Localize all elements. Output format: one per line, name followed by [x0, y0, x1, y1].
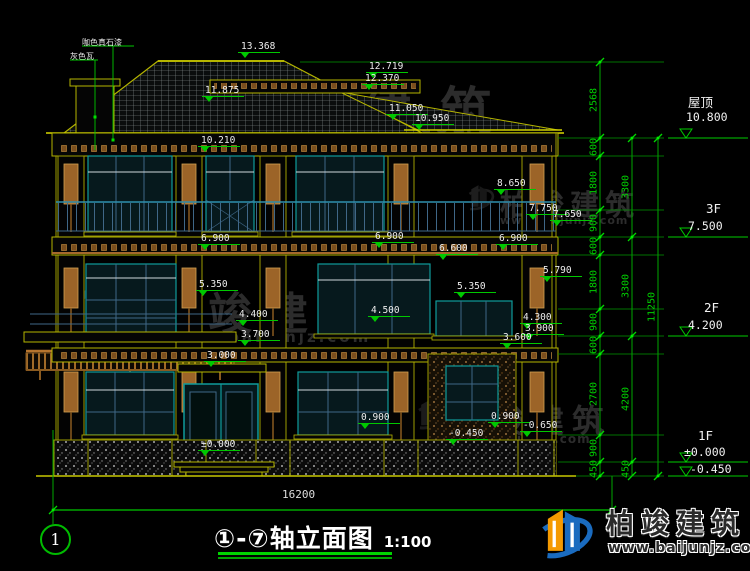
level-name: 1F	[698, 428, 713, 443]
elevation-mark: 3.700	[238, 330, 280, 341]
elevation-value: 11.875	[202, 86, 244, 96]
elevation-value: 4.500	[368, 306, 410, 316]
elevation-value: -0.650	[520, 421, 562, 431]
level-value: 4.200	[688, 318, 723, 332]
dim-label: 1800	[589, 270, 600, 294]
brand-block: 柏竣建筑 www.baijunjz.com	[520, 500, 750, 568]
dim-label: 1800	[589, 171, 600, 195]
roof	[64, 61, 562, 133]
elevation-value: 4.400	[236, 310, 278, 320]
elevation-value: 4.300	[520, 313, 562, 323]
level-name: 3F	[706, 201, 721, 216]
brand-logo-icon	[520, 500, 604, 566]
elevation-mark: 5.350	[454, 282, 496, 293]
elevation-value: 3.600	[500, 333, 542, 343]
brand-name: 柏竣建筑	[606, 502, 746, 542]
level-value: 7.500	[688, 219, 723, 233]
elevation-value: 6.600	[436, 244, 478, 254]
elevation-mark: 10.210	[198, 136, 240, 147]
elevation-mark: -0.650	[520, 421, 562, 432]
eave-cornice	[46, 133, 564, 156]
elevation-value: 3.700	[238, 330, 280, 340]
overall-dim-label: 16200	[282, 488, 315, 501]
elevation-mark: 3.600	[500, 333, 542, 344]
dim-label: 450	[589, 460, 600, 478]
elevation-value: -0.450	[446, 429, 488, 439]
terrace-railing	[56, 202, 556, 231]
material-label: 咖色真石漆	[82, 37, 122, 48]
elevation-mark: 11.875	[202, 86, 244, 97]
elevation-value: 12.370	[362, 74, 404, 84]
dim-label: 900	[589, 439, 600, 457]
second-floor-windows	[82, 264, 516, 340]
elevation-drawing-geometry	[0, 0, 750, 571]
elevation-value: 5.790	[540, 266, 582, 276]
elevation-mark: 5.790	[540, 266, 582, 277]
dim-label: 4200	[621, 387, 632, 411]
elevation-mark: 6.600	[436, 244, 478, 255]
elevation-mark: 6.900	[496, 234, 538, 245]
title-scale: 1:100	[384, 533, 432, 551]
elevation-value: 12.719	[366, 62, 408, 72]
elevation-mark: 10.950	[412, 114, 454, 125]
elevation-mark: 12.719	[366, 62, 408, 73]
base-and-ground	[36, 440, 576, 476]
title-underline	[218, 552, 392, 555]
dim-label: 3300	[621, 274, 632, 298]
title-underline	[218, 557, 392, 559]
level-name: 屋顶	[688, 92, 713, 111]
elevation-value: 0.900	[358, 413, 400, 423]
elevation-value: 6.900	[372, 232, 414, 242]
elevation-mark: 6.900	[372, 232, 414, 243]
elevation-mark: 7.650	[550, 210, 592, 221]
elevation-value: 10.950	[412, 114, 454, 124]
dim-label: 11250	[647, 292, 658, 322]
elevation-value: ±0.000	[198, 440, 240, 450]
elevation-value: 8.650	[494, 179, 536, 189]
elevation-mark: 8.650	[494, 179, 536, 190]
dim-label: 3300	[621, 175, 632, 199]
title-text: ①-⑦轴立面图	[214, 524, 374, 553]
elevation-mark: ±0.000	[198, 440, 240, 451]
elevation-value: 3.000	[204, 351, 246, 361]
elevation-value: 6.900	[496, 234, 538, 244]
dim-label: 2568	[589, 88, 600, 112]
elevation-mark: 3.000	[204, 351, 246, 362]
cad-elevation-screenshot: 柏竣建筑 www.baijunjz.com 柏竣建筑 www.baijunjz.…	[0, 0, 750, 571]
level-value: 10.800	[686, 110, 728, 124]
level-value: -0.450	[690, 462, 732, 476]
dim-label: 450	[621, 460, 632, 478]
brand-url: www.baijunjz.com	[608, 540, 750, 556]
elevation-mark: 6.900	[198, 234, 240, 245]
elevation-mark: 4.500	[368, 306, 410, 317]
elevation-value: 10.210	[198, 136, 240, 146]
elevation-value: 5.350	[196, 280, 238, 290]
dim-label: 600	[589, 336, 600, 354]
elevation-mark: 13.368	[238, 42, 280, 53]
elevation-value: 7.650	[550, 210, 592, 220]
dim-label: 2700	[589, 382, 600, 406]
elevation-mark: -0.450	[446, 429, 488, 440]
material-label: 灰色瓦	[70, 51, 94, 62]
elevation-mark: 12.370	[362, 74, 404, 85]
second-floor-cornice	[52, 237, 558, 255]
axis-bubble: 1	[40, 524, 71, 555]
dim-label: 900	[589, 214, 600, 232]
elevation-mark: 4.400	[236, 310, 278, 321]
elevation-value: 6.900	[198, 234, 240, 244]
drawing-title: ①-⑦轴立面图1:100	[214, 519, 431, 555]
dim-label: 900	[589, 313, 600, 331]
elevation-mark: 0.900	[358, 413, 400, 424]
elevation-value: 13.368	[238, 42, 280, 52]
level-name: 2F	[704, 300, 719, 315]
elevation-value: 5.350	[454, 282, 496, 292]
elevation-mark: 5.350	[196, 280, 238, 291]
level-value: ±0.000	[684, 445, 726, 459]
dim-label: 600	[589, 237, 600, 255]
dim-label: 600	[589, 138, 600, 156]
